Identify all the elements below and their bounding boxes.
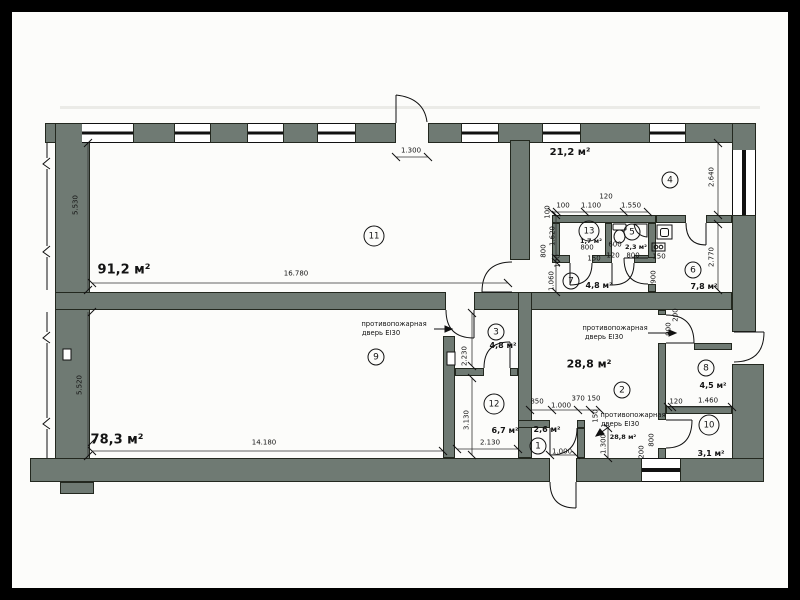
exit-door-swing [550,482,576,508]
frame-border [0,0,12,600]
dim-1060: 1.060 [549,271,556,291]
door-swing [686,223,706,245]
dim-150-room5: 150 [652,254,665,261]
stove-burners-icon [652,243,665,251]
frame-border [0,0,800,12]
dim-120-top: 120 [599,194,612,201]
room-3-area: 4,8 м² [490,342,517,350]
dim-800-corridor: 800 [541,244,548,257]
dim-1550: 1.550 [621,203,641,210]
room-11-number: 11 [364,226,385,247]
fire-door-label-3-line1: противопожарная [600,411,665,419]
fire-door-label-3-line2: дверь EI30 [601,420,639,428]
dim-1620: 1.620 [550,226,557,246]
dim-14180: 14.180 [252,440,277,447]
dim-800-room5: 800 [626,253,639,260]
fire-door-label-2-line2: дверь EI30 [585,333,623,341]
vent-shaft-icon [657,225,672,239]
dim-600: 600 [608,242,621,249]
room-1-area: 2,6 м² [534,426,561,434]
fire-door-swing [666,420,692,448]
room-4-number: 4 [662,172,679,189]
dim-2230: 2.230 [462,346,469,366]
dim-1000-door: 1.000 [552,449,572,456]
dim-150-room13: 150 [587,256,600,263]
room-2-area: 28,8 м² [567,359,612,370]
dim-2640: 2.640 [709,167,716,187]
room-5-area: 2,3 м² [625,244,647,251]
door-swing [482,262,512,292]
frame-border [788,0,800,600]
frame-border [0,588,800,600]
dim-5520: 5.520 [77,375,84,395]
dim-1000-room1: 1.000 [551,403,571,410]
dim-2770: 2.770 [709,247,716,267]
fire-door-swing [446,310,474,338]
dim-100-left: 100 [545,205,552,218]
dim-850: 850 [530,399,543,406]
dim-370-150: 370 150 [572,396,601,403]
dim-2130: 2.130 [480,440,500,447]
dim-200-room2: 200 [673,308,680,321]
dim-100-top: 100 [556,203,569,210]
room-9-number: 9 [368,349,385,366]
electrical-panel-icon [63,349,71,360]
dim-900-room6: 900 [651,270,658,283]
door-swing [612,263,634,285]
dim-1100: 1.100 [581,203,601,210]
dim-1300-top: 1.300 [401,148,421,155]
dim-120-room5: 120 [606,253,619,260]
room-12-number: 12 [484,394,505,415]
room-10-number: 10 [699,415,720,436]
fire-door-label-1-line2: дверь EI30 [362,329,400,337]
dim-800-room13: 800 [580,245,593,252]
dim-900-room2: 900 [666,322,673,335]
exit-door-swing [734,332,764,362]
room-6-number: 6 [685,262,702,279]
dim-1460: 1.460 [698,398,718,405]
room-8-area: 4,5 м² [700,382,727,390]
fire-door-label-1-line1: противопожарная [361,320,426,328]
dim-800-room10: 800 [649,433,656,446]
fire-door-label-2-line1: противопожарная [582,324,647,332]
room-12-area: 6,7 м² [492,427,519,435]
room-1-number: 1 [530,438,547,455]
room-6-area: 7,8 м² [691,283,718,291]
wall-break-marks [43,143,50,458]
entrance-door-swing [396,95,427,123]
room-7-number: 7 [563,273,580,290]
electrical-panel-icon [447,352,455,365]
room-5-number: 5 [624,224,641,241]
dim-5530: 5.530 [73,195,80,215]
room-4-area: 21,2 м² [550,148,591,158]
dim-150-room1: 150 [593,409,600,422]
dim-200-room10: 200 [639,445,646,458]
room-11-area: 91,2 м² [98,264,151,277]
room-3-number: 3 [488,324,505,341]
room-7-area: 4,8 м² [586,282,613,290]
room-8-number: 8 [698,360,715,377]
dim-100-corridor: 100 [555,254,562,267]
dim-3130: 3.130 [464,410,471,430]
room-2-number: 2 [614,382,631,399]
room-10-area: 3,1 м² [698,450,725,458]
plan-linework [0,0,800,600]
dim-16780: 16.780 [284,271,309,278]
dim-1300-room2: 1.300 [601,434,608,454]
room-9-area: 78,3 м² [91,434,144,447]
dim-120-room10: 120 [669,399,682,406]
floor-plan-sheet: 11 4 13 5 6 7 9 3 12 2 1 8 10 91,2 м² 78… [0,0,800,600]
room-2-area-lower: 28,8 м² [610,434,636,441]
